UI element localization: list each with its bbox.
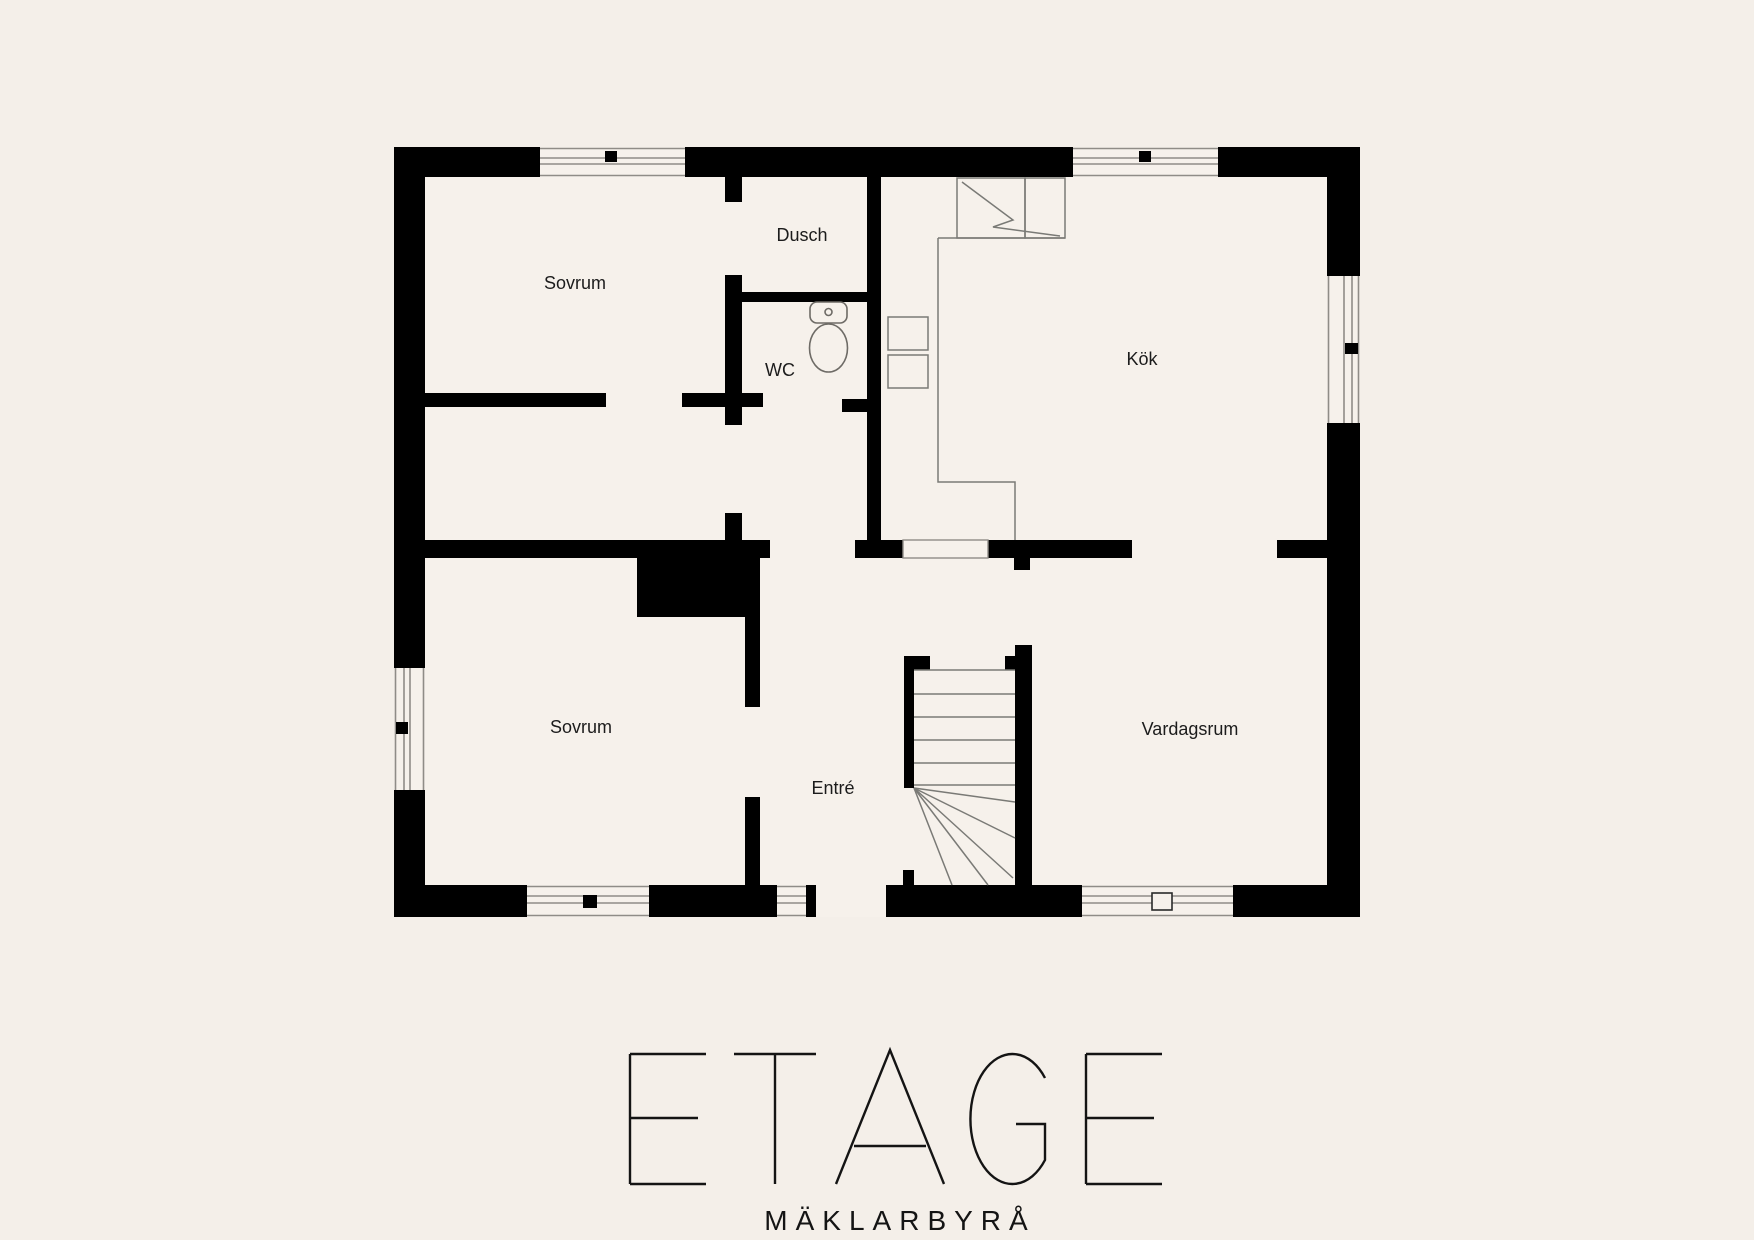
room-label-sovrum-1: Sovrum [544,273,606,293]
window-mullion [396,722,408,734]
entrance-sidelight-window [777,885,806,917]
toilet-icon [810,302,848,372]
floor-plan-canvas: Sovrum Dusch WC Kök Sovrum Entré Vardags… [0,0,1754,1240]
room-label-dusch: Dusch [776,225,827,245]
room-label-wc: WC [765,360,795,380]
window-mullion [583,895,597,908]
window-top-left [540,147,685,177]
brand-tagline: MÄKLARBYRÅ [764,1205,1035,1236]
window-mullion [1345,343,1358,354]
entrance-door-opening [816,885,886,917]
window-mullion [1152,893,1172,910]
window-bottom-left [527,885,649,917]
room-label-sovrum-2: Sovrum [550,717,612,737]
window-mullion [1139,151,1151,162]
room-label-kok: Kök [1126,349,1158,369]
wardrobe-block [637,558,760,617]
window-bottom-right [1082,885,1233,917]
window-mullion [605,151,617,162]
window-right [1327,276,1360,423]
cased-wall-opening [903,540,988,558]
room-label-entre: Entré [811,778,854,798]
window-top-right [1073,147,1218,177]
room-label-vardagsrum: Vardagsrum [1142,719,1239,739]
window-left [394,668,425,790]
